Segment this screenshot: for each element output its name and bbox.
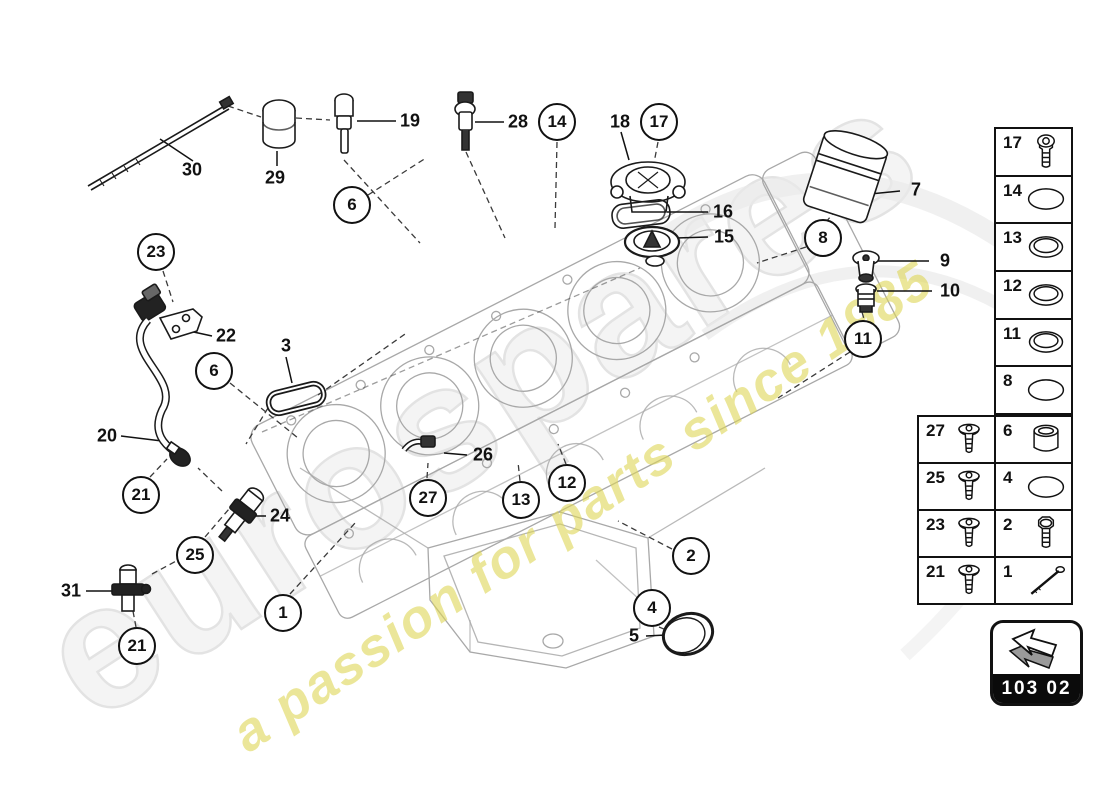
legend-cell-2: 2 — [995, 510, 1072, 557]
sensor-28-sketch — [455, 92, 475, 150]
gasket-16-sketch — [611, 199, 671, 230]
callout-6: 6 — [195, 352, 233, 390]
part-label-30: 30 — [182, 160, 202, 181]
legend-cell-6: 6 — [995, 416, 1072, 463]
legend-cell-8: 8 — [995, 366, 1072, 414]
callout-11: 11 — [844, 320, 882, 358]
back-arrow-icon — [993, 623, 1080, 674]
part-label-19: 19 — [400, 111, 420, 132]
legend-cell-13: 13 — [995, 223, 1072, 271]
bushing-icon — [1023, 420, 1069, 460]
callout-21: 21 — [122, 476, 160, 514]
part-label-22: 22 — [216, 326, 236, 347]
plug-10-sketch — [856, 284, 876, 312]
legend-part-number: 27 — [926, 421, 945, 441]
legend-table-lower: 276254232211 — [917, 415, 1073, 605]
cable-20-sketch — [140, 320, 194, 470]
legend-cell-12: 12 — [995, 271, 1072, 319]
callout-8: 8 — [804, 219, 842, 257]
part-label-20: 20 — [97, 426, 117, 447]
legend-part-number: 2 — [1003, 515, 1012, 535]
legend-cell-4: 4 — [995, 463, 1072, 510]
legend-cell-23: 23 — [918, 510, 995, 557]
legend-cell-17: 17 — [995, 128, 1072, 176]
part-label-31: 31 — [61, 581, 81, 602]
callout-1: 1 — [264, 594, 302, 632]
part-label-24: 24 — [270, 506, 290, 527]
legend-part-number: 23 — [926, 515, 945, 535]
parts-diagram-page: eurospares — [0, 0, 1100, 800]
gasket-3-sketch — [266, 382, 325, 416]
part-label-10: 10 — [940, 281, 960, 302]
legend-part-number: 8 — [1003, 371, 1012, 391]
cap-sketch — [263, 100, 295, 148]
o-ring-icon — [1023, 370, 1069, 410]
screw-icon — [946, 467, 992, 507]
callout-23: 23 — [137, 233, 175, 271]
callout-14: 14 — [538, 103, 576, 141]
part-label-28: 28 — [508, 112, 528, 133]
legend-cell-21: 21 — [918, 557, 995, 604]
callout-2: 2 — [672, 537, 710, 575]
legend-cell-25: 25 — [918, 463, 995, 510]
legend-part-number: 1 — [1003, 562, 1012, 582]
callout-6: 6 — [333, 186, 371, 224]
callout-27: 27 — [409, 479, 447, 517]
seal-ring-icon — [1023, 322, 1069, 362]
sensor-24-sketch — [211, 483, 269, 547]
sensor-19-sketch — [335, 94, 353, 153]
legend-part-number: 14 — [1003, 181, 1022, 201]
part-label-3: 3 — [281, 336, 291, 357]
part-label-15: 15 — [714, 227, 734, 248]
legend-part-number: 4 — [1003, 468, 1012, 488]
part-label-5: 5 — [629, 626, 639, 647]
dipstick-sketch — [88, 97, 233, 190]
legend-cell-1: 1 — [995, 557, 1072, 604]
dashed-leader-lines — [132, 106, 864, 632]
part-label-7: 7 — [911, 180, 921, 201]
callout-12: 12 — [548, 464, 586, 502]
part-label-9: 9 — [940, 251, 950, 272]
legend-part-number: 17 — [1003, 133, 1022, 153]
callout-17: 17 — [640, 103, 678, 141]
legend-part-number: 13 — [1003, 228, 1022, 248]
o-ring-icon — [1023, 467, 1069, 507]
legend-table-upper: 17141312118 — [994, 127, 1073, 415]
sensor-31-sketch — [112, 565, 151, 611]
callout-13: 13 — [502, 481, 540, 519]
stud-icon — [1023, 561, 1069, 601]
callout-4: 4 — [633, 589, 671, 627]
part-label-18: 18 — [610, 112, 630, 133]
seal-ring-icon — [1023, 227, 1069, 267]
callout-21: 21 — [118, 627, 156, 665]
callout-25: 25 — [176, 536, 214, 574]
legend-part-number: 12 — [1003, 276, 1022, 296]
seal-ring-icon — [1023, 275, 1069, 315]
part-label-29: 29 — [265, 168, 285, 189]
plug-9-sketch — [853, 251, 879, 282]
oil-filter-housing-sketch — [802, 125, 890, 224]
diagram-code: 103 02 — [993, 674, 1080, 703]
diagram-code-box: 103 02 — [990, 620, 1083, 706]
part-label-16: 16 — [713, 202, 733, 223]
legend-part-number: 6 — [1003, 421, 1012, 441]
hex-bolt-icon — [1023, 514, 1069, 554]
legend-part-number: 11 — [1003, 324, 1021, 344]
screw-icon — [946, 561, 992, 601]
clip-26-sketch — [404, 436, 435, 450]
legend-cell-14: 14 — [995, 176, 1072, 224]
thermostat-15-sketch — [625, 227, 679, 266]
legend-part-number: 21 — [926, 562, 945, 582]
legend-part-number: 25 — [926, 468, 945, 488]
screw-icon — [946, 514, 992, 554]
screw-icon — [946, 420, 992, 460]
legend-cell-27: 27 — [918, 416, 995, 463]
socket-bolt-icon — [1023, 132, 1069, 172]
o-ring-icon — [1023, 179, 1069, 219]
legend-cell-11: 11 — [995, 319, 1072, 367]
part-label-26: 26 — [473, 445, 493, 466]
